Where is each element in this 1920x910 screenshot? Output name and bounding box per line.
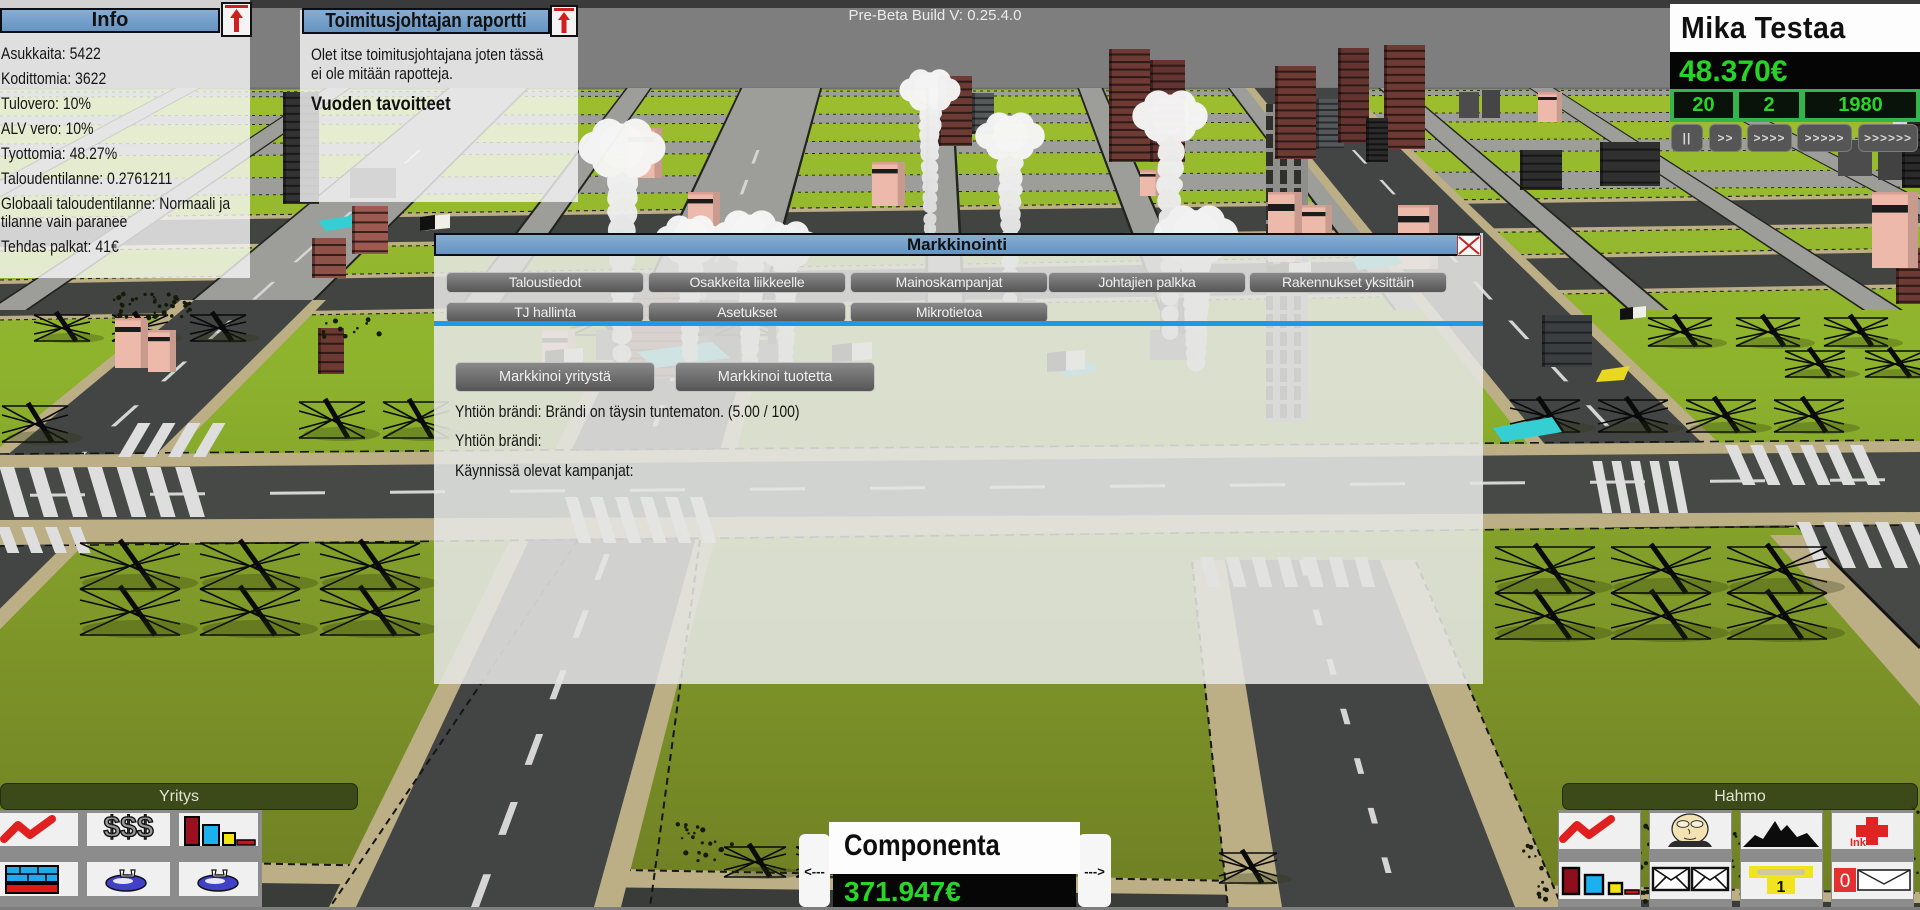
svg-text:Ink: Ink xyxy=(1850,837,1867,849)
svg-text:$$$: $$$ xyxy=(103,813,153,844)
svg-text:1: 1 xyxy=(1777,879,1786,896)
svg-text:0: 0 xyxy=(1840,871,1851,892)
